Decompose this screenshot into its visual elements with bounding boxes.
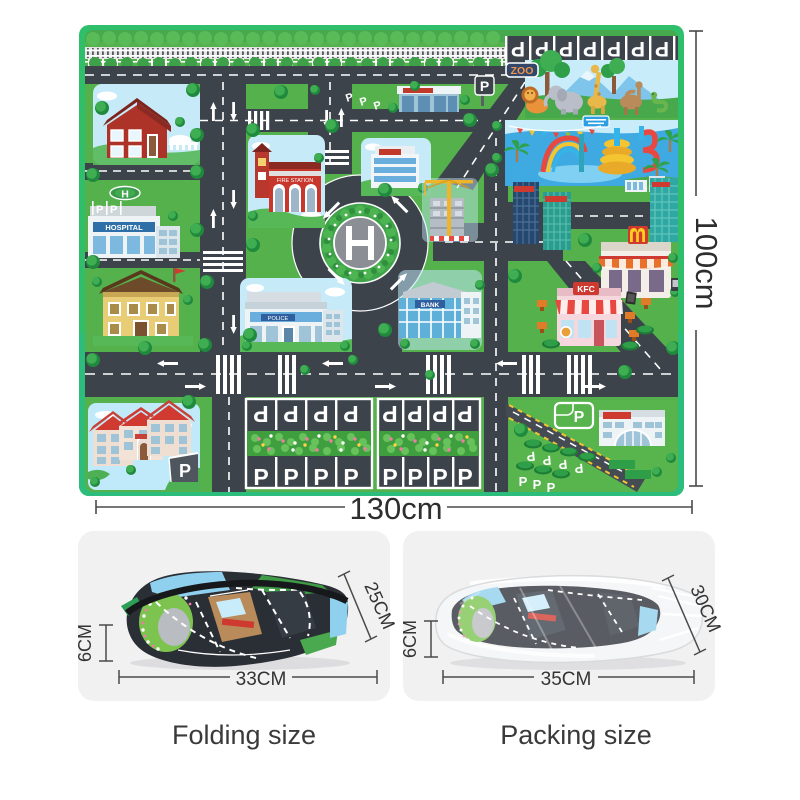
svg-text:P: P — [382, 464, 397, 490]
svg-text:ZOO: ZOO — [511, 65, 534, 77]
svg-text:P: P — [96, 204, 103, 216]
svg-text:P: P — [542, 453, 552, 469]
svg-text:POLICE: POLICE — [268, 316, 289, 322]
svg-text:P: P — [526, 449, 536, 465]
svg-text:P: P — [313, 464, 328, 490]
svg-text:P: P — [457, 401, 472, 427]
svg-text:P: P — [457, 464, 472, 490]
svg-text:P: P — [253, 464, 268, 490]
svg-text:H: H — [121, 189, 129, 201]
svg-text:Packing size: Packing size — [500, 720, 652, 750]
svg-text:P: P — [574, 461, 584, 477]
svg-text:P: P — [283, 401, 298, 427]
svg-text:P: P — [533, 477, 542, 492]
svg-text:P: P — [519, 474, 528, 489]
svg-text:6CM: 6CM — [400, 620, 420, 658]
svg-text:P: P — [253, 401, 268, 427]
svg-text:P: P — [283, 464, 298, 490]
svg-text:33CM: 33CM — [236, 669, 287, 690]
svg-text:Folding size: Folding size — [172, 720, 316, 750]
svg-text:FIRE STATION: FIRE STATION — [277, 178, 313, 184]
svg-text:KFC: KFC — [577, 284, 594, 294]
svg-text:P: P — [343, 401, 358, 427]
svg-text:P: P — [382, 401, 397, 427]
svg-text:P: P — [313, 401, 328, 427]
svg-text:P: P — [583, 37, 597, 60]
svg-text:BANK: BANK — [421, 302, 440, 309]
svg-text:35CM: 35CM — [541, 669, 592, 690]
svg-text:P: P — [558, 457, 568, 473]
svg-text:100cm: 100cm — [689, 216, 724, 309]
svg-text:P: P — [407, 401, 422, 427]
svg-text:P: P — [407, 464, 422, 490]
svg-text:P: P — [631, 37, 645, 60]
svg-text:130cm: 130cm — [349, 491, 442, 526]
svg-text:P: P — [511, 37, 525, 60]
svg-text:P: P — [432, 401, 447, 427]
svg-text:P: P — [110, 204, 117, 216]
svg-text:P: P — [432, 464, 447, 490]
svg-text:P: P — [607, 37, 621, 60]
svg-text:P: P — [179, 461, 191, 481]
svg-text:P: P — [480, 78, 489, 94]
svg-text:6CM: 6CM — [75, 624, 95, 662]
svg-text:P: P — [343, 464, 358, 490]
svg-text:P: P — [559, 37, 573, 60]
svg-text:P: P — [574, 409, 585, 426]
svg-text:P: P — [655, 37, 669, 60]
svg-text:HOSPITAL: HOSPITAL — [105, 223, 143, 232]
